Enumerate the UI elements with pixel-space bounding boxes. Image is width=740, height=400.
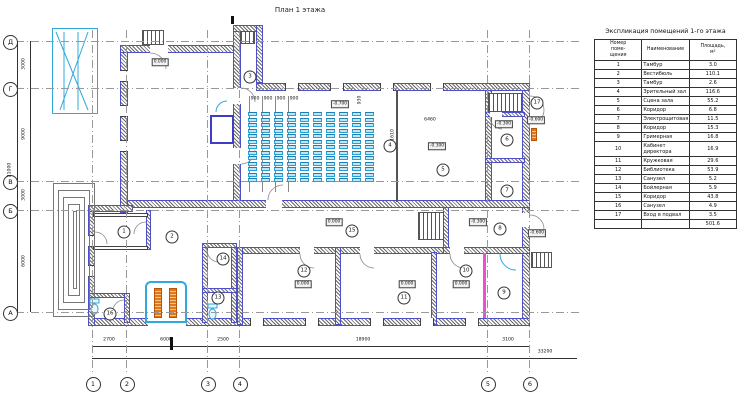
room-number-cell: 6: [595, 106, 642, 115]
auditorium-seat: [274, 129, 283, 133]
auditorium-seat: [274, 140, 283, 144]
schedule-header-row: Номер поме- щения Наименование Площадь, …: [595, 40, 737, 61]
room-number-bubble: 11: [398, 292, 411, 305]
auditorium-seat: [248, 151, 257, 155]
room-name-cell: Вестибюль: [642, 70, 689, 79]
auditorium-seat: [326, 178, 335, 182]
auditorium-seat: [365, 151, 374, 155]
room-area-cell: 6.8: [689, 106, 736, 115]
auditorium-seat: [300, 134, 309, 138]
room-number-bubble: 10: [460, 265, 473, 278]
auditorium-seat: [365, 156, 374, 160]
auditorium-seat: [300, 173, 309, 177]
wall: [335, 247, 341, 325]
room-number-cell: 10: [595, 142, 642, 157]
auditorium-seat: [352, 178, 361, 182]
auditorium-seat: [261, 118, 270, 122]
room-number-bubble: 4: [384, 140, 397, 153]
auditorium-seat: [261, 112, 270, 116]
axis-bubble-column: 4: [233, 377, 248, 392]
auditorium-seat: [339, 134, 348, 138]
room-name-cell: Зрительный зал: [642, 88, 689, 97]
auditorium-seat: [274, 156, 283, 160]
auditorium-seat: [261, 167, 270, 171]
room-area-cell: 4.9: [689, 202, 736, 211]
schedule-row: 8Коридор15.3: [595, 124, 737, 133]
auditorium-seat: [274, 112, 283, 116]
auditorium-seat: [287, 151, 296, 155]
dimension-label: 900: [264, 97, 273, 102]
empty-cell: [595, 220, 642, 229]
auditorium-seat: [287, 162, 296, 166]
auditorium-seat: [261, 145, 270, 149]
auditorium-seat: [326, 140, 335, 144]
auditorium-seat: [300, 156, 309, 160]
schedule-row: 2Вестибюль110.1: [595, 70, 737, 79]
room-number-bubble: 2: [166, 231, 179, 244]
elevation-marker: -0.600: [527, 116, 545, 124]
auditorium-seat: [313, 134, 322, 138]
auditorium-seat: [339, 145, 348, 149]
auditorium-seat: [352, 129, 361, 133]
schedule-col-area: Площадь, м²: [689, 40, 736, 61]
auditorium-seat: [352, 118, 361, 122]
room-number-cell: 2: [595, 70, 642, 79]
dimension-line: [17, 41, 18, 312]
auditorium-seat: [339, 167, 348, 171]
auditorium-seat: [248, 118, 257, 122]
room-name-cell: Санузел: [642, 175, 689, 184]
room-number-bubble: 14: [217, 253, 230, 266]
auditorium-seat: [313, 129, 322, 133]
axis-bubble-row: Б: [3, 204, 18, 219]
schedule-row: 5Сцена зала55.2: [595, 97, 737, 106]
auditorium-seat: [274, 178, 283, 182]
auditorium-seat: [261, 134, 270, 138]
auditorium-seat: [339, 118, 348, 122]
auditorium-seat: [365, 112, 374, 116]
room-number-bubble: 12: [298, 265, 311, 278]
auditorium-seat: [365, 178, 374, 182]
auditorium-seat: [352, 145, 361, 149]
dimension-label: 9000: [22, 128, 27, 140]
room-number-cell: 15: [595, 193, 642, 202]
auditorium-seat: [248, 173, 257, 177]
auditorium-seat: [248, 167, 257, 171]
dimension-label: 6000: [22, 255, 27, 267]
window: [305, 318, 319, 326]
room-number-bubble: 16: [104, 308, 117, 321]
auditorium-seat: [352, 156, 361, 160]
room-name-cell: Библиотека: [642, 166, 689, 175]
auditorium-seat: [326, 118, 335, 122]
auditorium-seat: [326, 156, 335, 160]
wall: [120, 45, 234, 53]
auditorium-seat: [365, 162, 374, 166]
axis-line-horizontal: [16, 312, 582, 313]
room-name-cell: Санузел: [642, 202, 689, 211]
auditorium-seat: [274, 167, 283, 171]
auditorium-seat: [274, 123, 283, 127]
auditorium-seat: [313, 140, 322, 144]
room-area-cell: 5.2: [689, 175, 736, 184]
dimension-label: 3100: [502, 338, 514, 343]
axis-line-vertical: [126, 30, 127, 374]
window: [430, 83, 444, 91]
auditorium-seat: [352, 167, 361, 171]
axis-bubble-column: 3: [201, 377, 216, 392]
axis-bubble-column: 6: [523, 377, 538, 392]
room-number-cell: 12: [595, 166, 642, 175]
room-name-cell: Коридор: [642, 124, 689, 133]
auditorium-seat: [287, 173, 296, 177]
schedule-col-number: Номер поме- щения: [595, 40, 642, 61]
auditorium-seat: [261, 140, 270, 144]
room-area-cell: 53.9: [689, 166, 736, 175]
auditorium-seat: [352, 140, 361, 144]
window: [465, 318, 479, 326]
partition: [93, 213, 148, 217]
schedule-row: 6Коридор6.8: [595, 106, 737, 115]
auditorium-seat: [248, 134, 257, 138]
auditorium-seat: [300, 129, 309, 133]
schedule-row: 16Санузел4.9: [595, 202, 737, 211]
room-name-cell: Электрощитовая: [642, 115, 689, 124]
window: [250, 318, 264, 326]
wall: [485, 158, 525, 163]
axis-line-vertical: [529, 30, 530, 374]
room-number-cell: 14: [595, 184, 642, 193]
schedule-row: 7Электрощитовая11.5: [595, 115, 737, 124]
auditorium-seat: [287, 123, 296, 127]
room-number-bubble: 3: [244, 71, 257, 84]
schedule-row: 10Кабинет директора16.9: [595, 142, 737, 157]
auditorium-seat: [248, 145, 257, 149]
room-area-cell: 55.2: [689, 97, 736, 106]
room-number-cell: 4: [595, 88, 642, 97]
schedule-row: 13Санузел5.2: [595, 175, 737, 184]
stair-outdoor: [531, 252, 552, 268]
room-name-cell: Вход в подвал: [642, 211, 689, 220]
stair-basement: [488, 93, 522, 112]
door-swing-arcs: [95, 53, 544, 311]
door-opening: [300, 247, 314, 254]
schedule-row: 11Кружковая29.6: [595, 157, 737, 166]
auditorium-seat: [352, 151, 361, 155]
room-number-bubble: 15: [346, 225, 359, 238]
auditorium-seat: [300, 118, 309, 122]
auditorium-seat: [365, 140, 374, 144]
room-name-cell: Бойлерная: [642, 184, 689, 193]
room-number-cell: 17: [595, 211, 642, 220]
auditorium-seat: [326, 145, 335, 149]
auditorium-seat: [326, 167, 335, 171]
entrance-step-strip: [154, 288, 162, 318]
auditorium-seat: [274, 151, 283, 155]
axis-line-horizontal: [16, 41, 582, 42]
magenta-partition: [483, 253, 486, 318]
auditorium-seat: [287, 112, 296, 116]
auditorium-seat: [365, 173, 374, 177]
dimension-line: [92, 358, 577, 359]
auditorium-seat: [313, 118, 322, 122]
dimension-label: 3000: [22, 58, 27, 70]
schedule-row: 15Коридор43.8: [595, 193, 737, 202]
auditorium-seat: [313, 167, 322, 171]
door-opening: [450, 247, 464, 254]
axis-bubble-column: 1: [86, 377, 101, 392]
wall: [237, 247, 243, 325]
auditorium-seat: [365, 118, 374, 122]
elevation-marker: 0.000: [453, 280, 470, 288]
auditorium-seat: [326, 151, 335, 155]
schedule-row: 4Зрительный зал116.6: [595, 88, 737, 97]
empty-cell: [642, 220, 689, 229]
auditorium-seat: [274, 145, 283, 149]
dimension-label: 1610: [391, 129, 396, 141]
auditorium-seat: [365, 129, 374, 133]
auditorium-seat: [313, 112, 322, 116]
room-name-cell: Тамбур: [642, 61, 689, 70]
auditorium-seat: [300, 112, 309, 116]
room-area-cell: 2.6: [689, 79, 736, 88]
room-name-cell: Коридор: [642, 106, 689, 115]
auditorium-seat: [287, 145, 296, 149]
auditorium-seat: [261, 173, 270, 177]
auditorium-seat: [313, 162, 322, 166]
elevation-marker: -0.700: [331, 100, 349, 108]
elevation-marker: -0.300: [495, 120, 513, 128]
room-number-bubble: 1: [118, 226, 131, 239]
room-number-cell: 13: [595, 175, 642, 184]
door-opening: [266, 200, 282, 208]
axis-bubble-row: Г: [3, 82, 18, 97]
auditorium-seat: [326, 162, 335, 166]
auditorium-seat: [313, 173, 322, 177]
elevation-marker: -0.300: [469, 218, 487, 226]
partition: [93, 246, 148, 250]
schedule-col-name: Наименование: [642, 40, 689, 61]
auditorium-seat: [352, 162, 361, 166]
dimension-label: 900: [290, 97, 299, 102]
wall: [431, 252, 437, 325]
dimension-label: 3000: [22, 189, 27, 201]
auditorium-seat: [300, 123, 309, 127]
auditorium-seat: [274, 173, 283, 177]
axis-line-horizontal: [16, 181, 582, 182]
auditorium-seat: [326, 134, 335, 138]
room-number-cell: 7: [595, 115, 642, 124]
room-number-cell: 9: [595, 133, 642, 142]
dimension-label: 33200: [538, 350, 553, 355]
room-number-cell: 3: [595, 79, 642, 88]
room-number-cell: 1: [595, 61, 642, 70]
auditorium-seat: [339, 151, 348, 155]
axis-bubble-row: А: [3, 306, 18, 321]
dimension-label: 21000: [8, 163, 13, 178]
auditorium-seat: [365, 123, 374, 127]
elevation-marker: 0.000: [399, 280, 416, 288]
room-name-cell: Кабинет директора: [642, 142, 689, 157]
schedule-row: 17Вход в подвал3.5: [595, 211, 737, 220]
auditorium-seat: [352, 173, 361, 177]
auditorium-seat: [261, 162, 270, 166]
room-area-cell: 3.0: [689, 61, 736, 70]
wall: [256, 25, 263, 83]
auditorium-seat: [274, 118, 283, 122]
auditorium-seat: [326, 123, 335, 127]
wall: [124, 293, 130, 323]
hatch-strip: [531, 128, 537, 141]
room-name-cell: Коридор: [642, 193, 689, 202]
dimension-label: 2700: [103, 338, 115, 343]
window: [285, 83, 299, 91]
dimension-label: 6000: [160, 338, 172, 343]
dimension-line: [30, 41, 31, 312]
room-area-cell: 11.5: [689, 115, 736, 124]
room-schedule: Экспликация помещений 1-го этажа Номер п…: [594, 28, 737, 229]
auditorium-seat: [326, 173, 335, 177]
dimension-label: 18900: [356, 338, 371, 343]
room-number-bubble: 8: [494, 223, 507, 236]
auditorium-seat: [261, 151, 270, 155]
auditorium-seat: [261, 156, 270, 160]
auditorium-seat: [287, 156, 296, 160]
auditorium-seat: [339, 123, 348, 127]
auditorium-seat: [300, 178, 309, 182]
auditorium-seat: [287, 129, 296, 133]
room-number-bubble: 6: [501, 134, 514, 147]
auditorium-seat: [287, 178, 296, 182]
room-area-cell: 15.3: [689, 124, 736, 133]
stair: [142, 30, 164, 45]
auditorium-seat: [274, 134, 283, 138]
auditorium-seat: [339, 112, 348, 116]
auditorium-seat: [313, 123, 322, 127]
entrance-canopy: [145, 281, 187, 323]
auditorium-seat: [248, 112, 257, 116]
auditorium-seat: [248, 156, 257, 160]
auditorium-seat: [261, 123, 270, 127]
axis-line-vertical: [92, 30, 93, 374]
schedule-row: 12Библиотека53.9: [595, 166, 737, 175]
axis-line-vertical: [207, 30, 208, 374]
room-number-cell: 11: [595, 157, 642, 166]
auditorium-seat: [300, 145, 309, 149]
auditorium-seat: [326, 129, 335, 133]
axis-bubble-column: 2: [120, 377, 135, 392]
dimension-line: [92, 346, 529, 347]
auditorium-seat: [274, 162, 283, 166]
dimension-label: 2500: [217, 338, 229, 343]
axis-line-vertical: [487, 30, 488, 374]
room-number-cell: 5: [595, 97, 642, 106]
door-opening: [360, 247, 374, 254]
dimension-label: 930: [358, 96, 363, 105]
room-name-cell: Гримерная: [642, 133, 689, 142]
auditorium-seat: [248, 123, 257, 127]
door-opening: [490, 112, 502, 117]
room-number-bubble: 9: [498, 287, 511, 300]
auditorium-seat: [326, 112, 335, 116]
room-area-cell: 110.1: [689, 70, 736, 79]
axis-line-horizontal: [16, 210, 582, 211]
auditorium-seat: [313, 151, 322, 155]
dimension-label: 900: [251, 97, 260, 102]
room-name-cell: Кружковая: [642, 157, 689, 166]
schedule-row: 14Бойлерная5.9: [595, 184, 737, 193]
auditorium-seat: [287, 140, 296, 144]
wall: [127, 200, 530, 208]
auditorium-seat: [352, 123, 361, 127]
schedule-row: 9Гримерная16.8: [595, 133, 737, 142]
auditorium-seat: [248, 129, 257, 133]
auditorium-seat: [313, 178, 322, 182]
room-name-cell: Тамбур: [642, 79, 689, 88]
auditorium-seat: [352, 134, 361, 138]
auditorium-seat: [339, 156, 348, 160]
floor-plan: 123456ДГВБА12345678910111213141516170.00…: [0, 0, 595, 400]
window: [380, 83, 394, 91]
elevation-marker: 0.000: [295, 280, 312, 288]
room-number-bubble: 7: [501, 185, 514, 198]
auditorium-seat: [365, 167, 374, 171]
auditorium-seat: [313, 156, 322, 160]
elevation-marker: -0.600: [528, 229, 546, 237]
schedule-row: 3Тамбур2.6: [595, 79, 737, 88]
door-opening: [150, 45, 168, 53]
room-area-cell: 43.8: [689, 193, 736, 202]
room-number-bubble: 17: [531, 97, 544, 110]
drawing-sheet: План 1 этажа: [0, 0, 740, 400]
auditorium-seat: [261, 178, 270, 182]
schedule-title: Экспликация помещений 1-го этажа: [594, 28, 737, 35]
section-mark: [231, 16, 234, 24]
total-area-cell: 501.6: [689, 220, 736, 229]
window: [330, 83, 344, 91]
room-number-cell: 16: [595, 202, 642, 211]
auditorium-seat: [365, 145, 374, 149]
stair: [240, 31, 255, 44]
room-number-cell: 8: [595, 124, 642, 133]
auditorium-seat: [300, 140, 309, 144]
auditorium-seat: [248, 162, 257, 166]
auditorium-seat: [300, 162, 309, 166]
dimension-label: 900: [277, 97, 286, 102]
schedule-row: 1Тамбур3.0: [595, 61, 737, 70]
auditorium-seat: [365, 134, 374, 138]
axis-line-horizontal: [16, 88, 582, 89]
window: [420, 318, 434, 326]
auditorium-seat: [300, 167, 309, 171]
room-area-cell: 29.6: [689, 157, 736, 166]
wardrobe-counter: [210, 115, 234, 144]
room-area-cell: 16.9: [689, 142, 736, 157]
auditorium-seat: [339, 178, 348, 182]
auditorium-seat: [339, 140, 348, 144]
stair: [418, 212, 444, 240]
auditorium-seat: [339, 129, 348, 133]
schedule-table: Номер поме- щения Наименование Площадь, …: [594, 39, 737, 229]
room-area-cell: 16.8: [689, 133, 736, 142]
axis-bubble-column: 5: [481, 377, 496, 392]
window: [370, 318, 384, 326]
room-area-cell: 5.9: [689, 184, 736, 193]
auditorium-seat: [248, 178, 257, 182]
room-name-cell: Сцена зала: [642, 97, 689, 106]
room-number-bubble: 5: [437, 164, 450, 177]
axis-line-vertical: [239, 30, 240, 374]
